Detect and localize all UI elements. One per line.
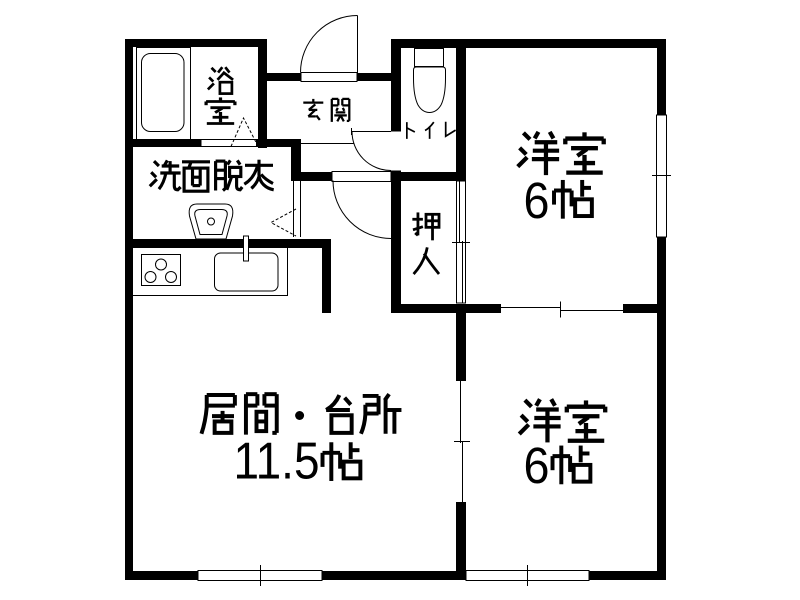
svg-text:6: 6	[524, 437, 550, 494]
svg-text:6: 6	[524, 172, 550, 229]
svg-text:11.5: 11.5	[234, 433, 320, 491]
